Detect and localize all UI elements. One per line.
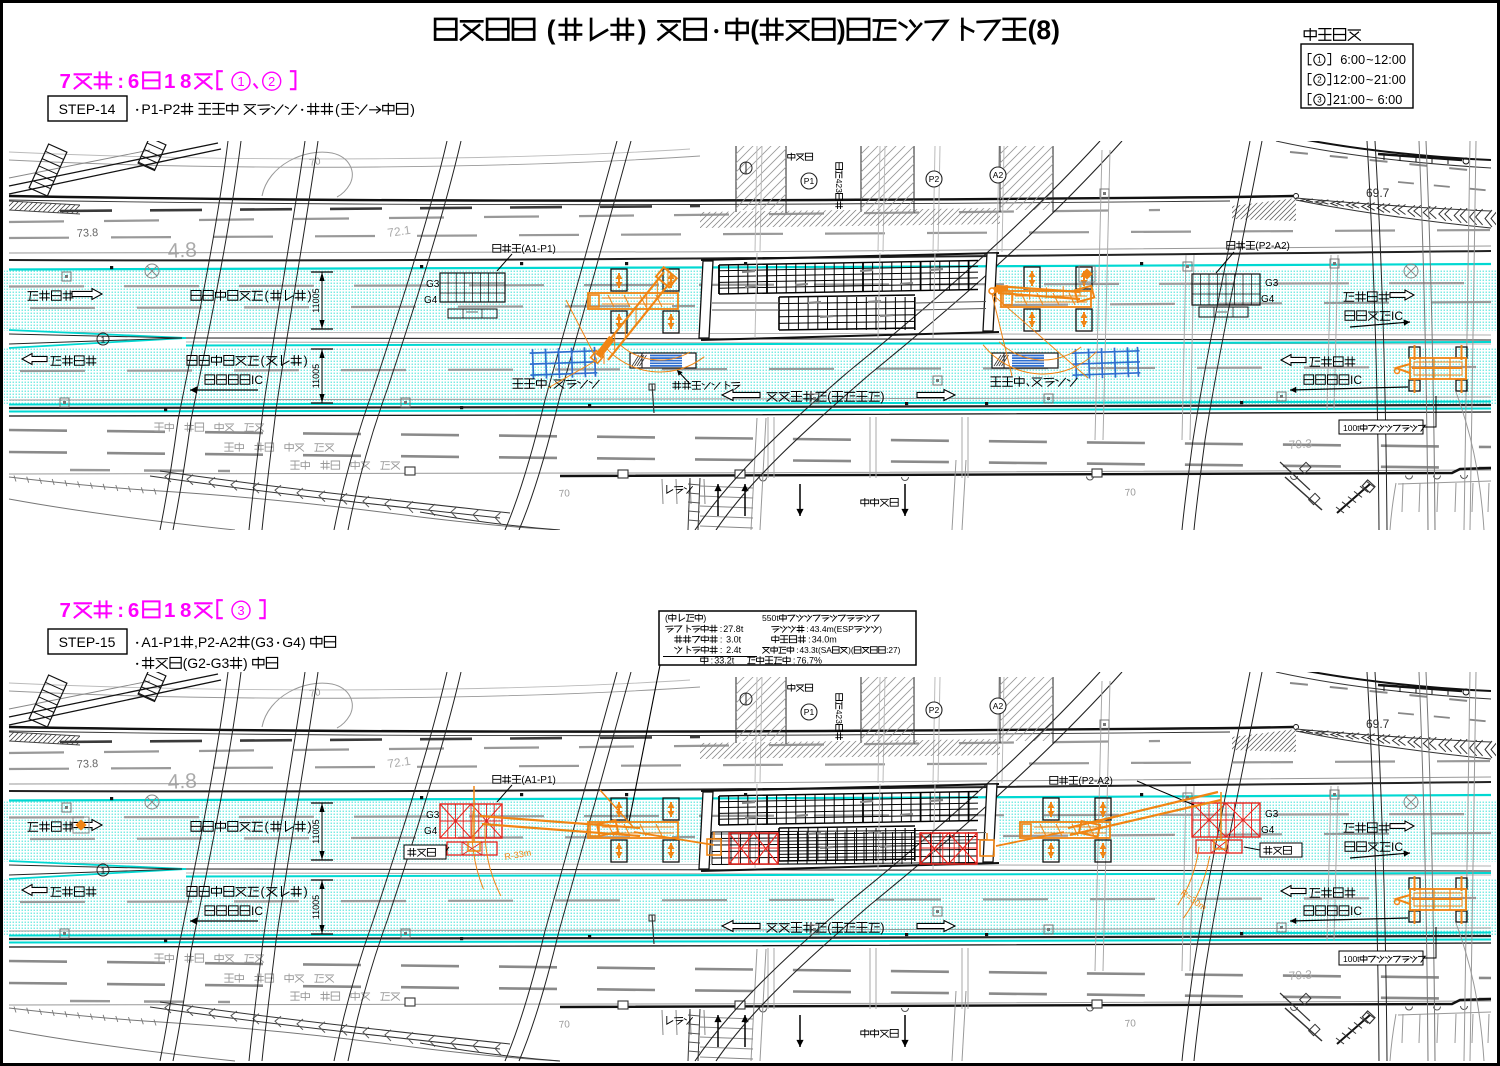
svg-text:~: ~	[1366, 52, 1373, 67]
svg-text:A1-P1: A1-P1	[141, 634, 180, 650]
svg-text:550t: 550t	[762, 613, 779, 623]
svg-text:6: 6	[128, 70, 139, 93]
svg-text::: :	[808, 635, 811, 645]
svg-text:12:00: 12:00	[1333, 72, 1365, 87]
svg-text:(G3: (G3	[251, 634, 275, 650]
svg-text::27): :27)	[886, 645, 901, 655]
svg-text:(: (	[335, 101, 340, 117]
svg-text:): )	[638, 15, 647, 45]
svg-text:~: ~	[1366, 72, 1373, 87]
svg-text:(: (	[750, 15, 759, 45]
svg-text:G4): G4)	[282, 634, 305, 650]
svg-text:1: 1	[164, 70, 175, 93]
svg-text:21:00: 21:00	[1333, 92, 1365, 107]
svg-text:3: 3	[1317, 96, 1322, 105]
svg-text:27.8t: 27.8t	[723, 624, 744, 634]
svg-text:7: 7	[60, 599, 71, 622]
svg-text:43.4m(ESP: 43.4m(ESP	[810, 624, 854, 634]
svg-text:(P2-A2): (P2-A2)	[1255, 241, 1289, 252]
svg-text:(P2-A2): (P2-A2)	[1078, 776, 1112, 787]
svg-text:(G2-G3: (G2-G3	[183, 655, 230, 671]
svg-text:1: 1	[1317, 56, 1321, 65]
svg-text:21:00: 21:00	[1374, 72, 1406, 87]
svg-text:8: 8	[180, 70, 191, 93]
svg-text:3: 3	[237, 604, 244, 618]
svg-text::: :	[720, 635, 723, 645]
svg-text:76.7%: 76.7%	[797, 656, 823, 666]
svg-text::: :	[793, 656, 796, 666]
svg-text:): )	[837, 15, 846, 45]
svg-text:(8): (8)	[1028, 15, 1060, 45]
svg-text:34.0m: 34.0m	[812, 635, 837, 645]
svg-text:): )	[410, 101, 415, 117]
svg-text:6:00: 6:00	[1340, 52, 1365, 67]
svg-text:): )	[879, 624, 882, 634]
svg-text:6:00: 6:00	[1378, 92, 1403, 107]
svg-text:(: (	[665, 613, 668, 623]
svg-text::: :	[720, 624, 723, 634]
svg-text::: :	[796, 645, 798, 655]
svg-text::: :	[117, 70, 124, 93]
svg-text:STEP-14: STEP-14	[59, 101, 116, 117]
svg-text:1: 1	[237, 75, 244, 89]
svg-text:P1-P2: P1-P2	[141, 101, 180, 117]
svg-text:12:00: 12:00	[1374, 52, 1406, 67]
svg-text:(: (	[547, 15, 556, 45]
svg-text:43.3t(SA: 43.3t(SA	[800, 645, 833, 655]
svg-text:1: 1	[164, 599, 175, 622]
svg-text:3.0t: 3.0t	[726, 635, 742, 645]
svg-text::: :	[117, 599, 124, 622]
svg-text:)(: )(	[848, 645, 854, 655]
svg-text::: :	[806, 624, 808, 634]
svg-text:): )	[243, 655, 248, 671]
svg-text:STEP-15: STEP-15	[59, 634, 116, 650]
svg-text:~: ~	[1366, 92, 1373, 107]
svg-text:): )	[703, 613, 706, 623]
svg-text:,P2-A2: ,P2-A2	[194, 634, 237, 650]
svg-text:2: 2	[1317, 76, 1321, 85]
svg-text:2.4t: 2.4t	[726, 645, 742, 655]
svg-text:6: 6	[128, 599, 139, 622]
svg-text:8: 8	[180, 599, 191, 622]
svg-text:7: 7	[60, 70, 71, 93]
svg-text::: :	[720, 645, 723, 655]
svg-text:2: 2	[268, 75, 275, 89]
